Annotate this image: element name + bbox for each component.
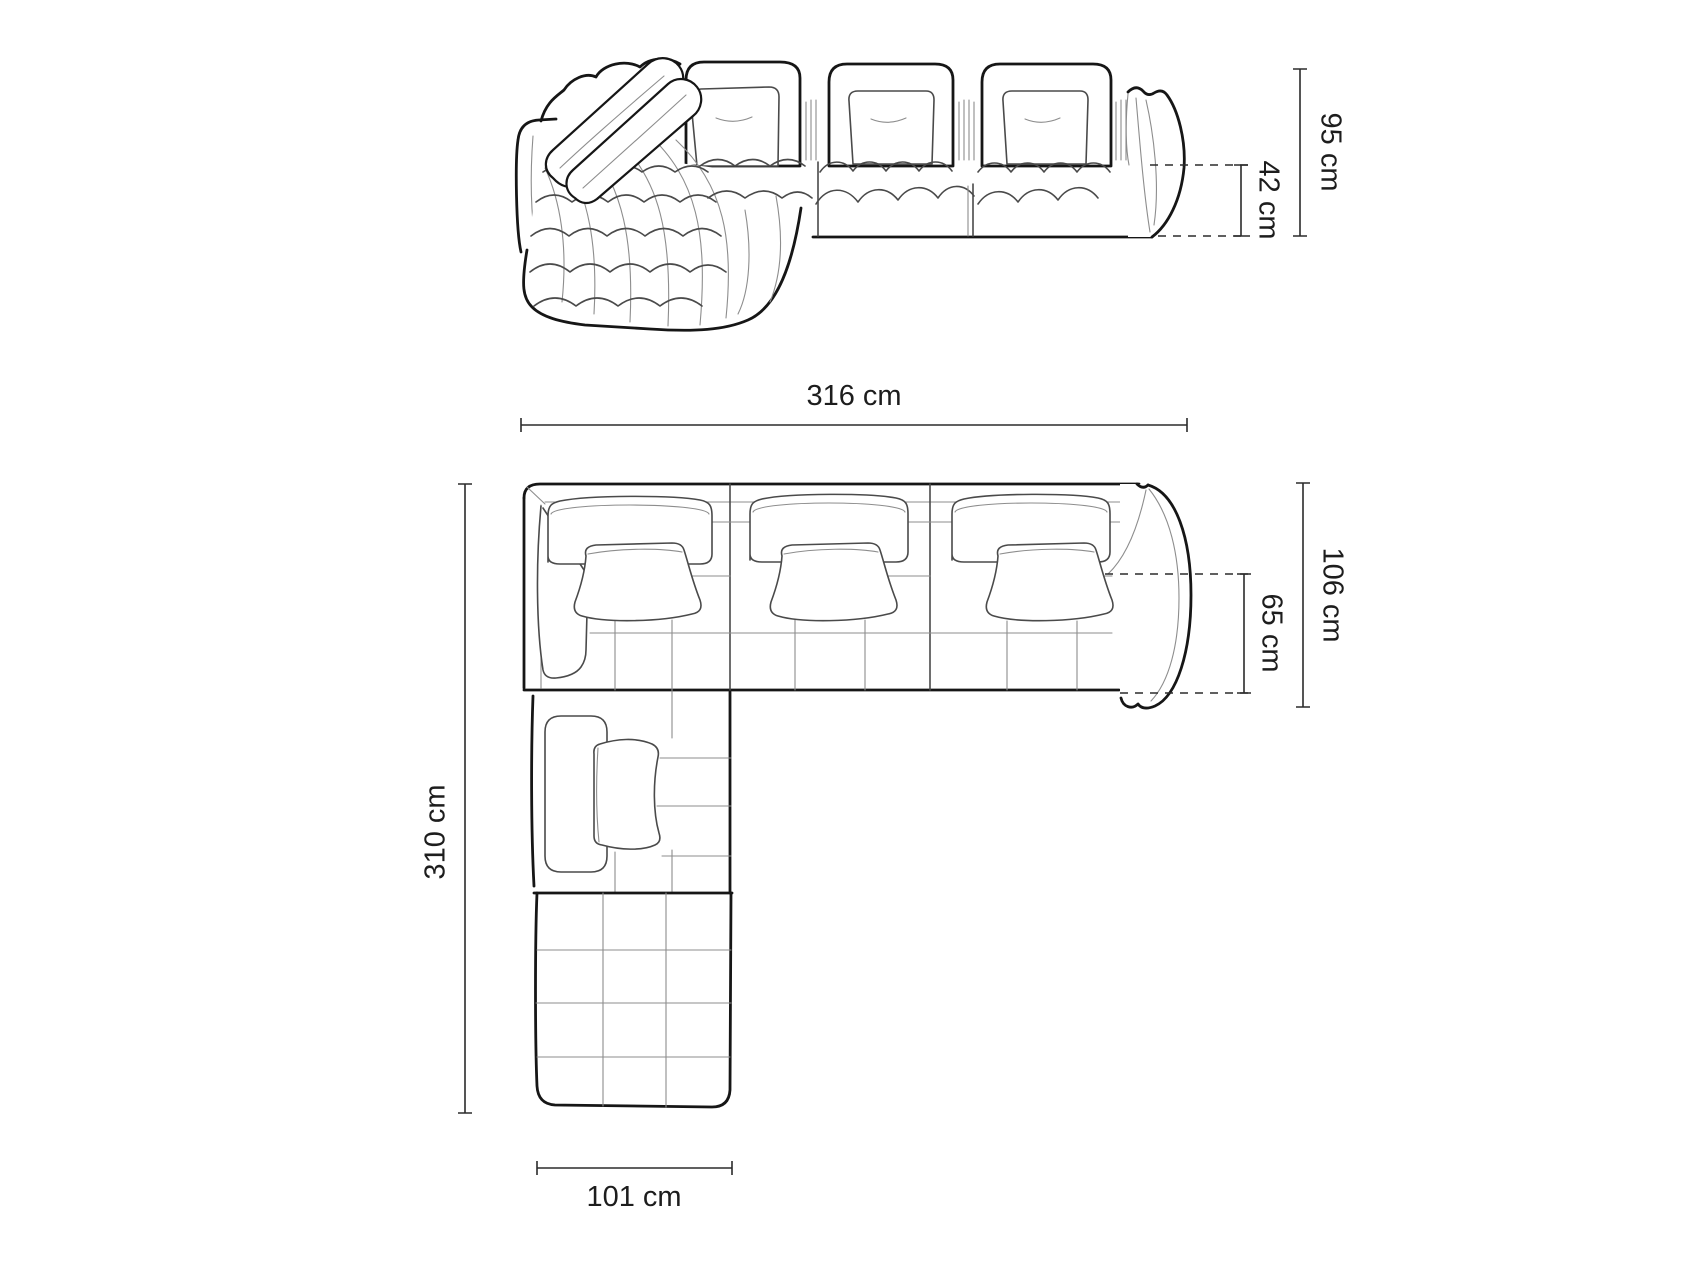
dim-label-seat-depth: 65 cm: [1255, 594, 1287, 673]
dim-label-seat-height: 42 cm: [1252, 161, 1284, 240]
dim-label-total-height: 95 cm: [1314, 113, 1346, 192]
dim-label-side-depth: 106 cm: [1316, 547, 1348, 642]
dim-label-total-depth: 310 cm: [420, 784, 452, 879]
top-plan-view: 316 cm 310 cm 106 cm 65 cm 101 cm: [420, 380, 1349, 1213]
dim-seat-depth: 65 cm: [1237, 574, 1287, 693]
plan-seat-pillows: [574, 543, 1113, 621]
dim-total-width: 316 cm: [521, 380, 1187, 432]
drawing-canvas: 95 cm 42 cm: [0, 0, 1706, 1279]
sofa-technical-drawing: 95 cm 42 cm: [0, 0, 1706, 1279]
dim-chaise-width: 101 cm: [537, 1161, 732, 1213]
plan-right-arm: [1108, 484, 1191, 708]
dim-seat-height: 42 cm: [1234, 161, 1284, 240]
plan-chaise-middle-module: [532, 690, 732, 893]
dim-side-depth: 106 cm: [1296, 483, 1348, 707]
dim-total-depth: 310 cm: [420, 484, 472, 1113]
front-seat-tufting: [816, 162, 1110, 204]
plan-chaise-end-module: [536, 893, 732, 1107]
dim-label-chaise-width: 101 cm: [586, 1181, 681, 1213]
dim-total-height: 95 cm: [1293, 69, 1346, 236]
dim-label-total-width: 316 cm: [806, 380, 901, 412]
front-inner-cushions: [691, 87, 1088, 166]
front-right-arm: [1126, 88, 1184, 237]
front-elevation-view: 95 cm 42 cm: [516, 58, 1346, 330]
